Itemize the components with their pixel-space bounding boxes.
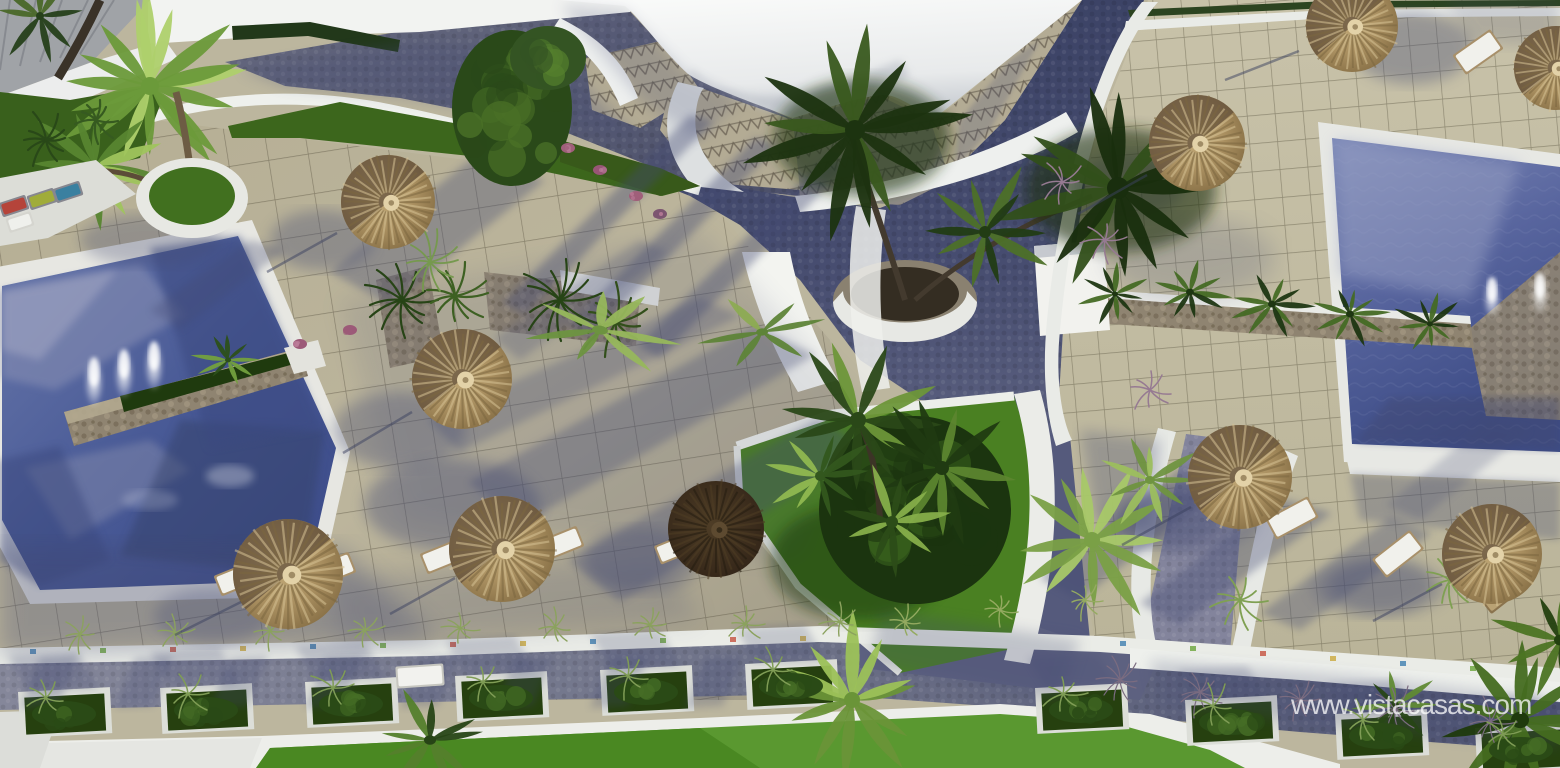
svg-text:www.vistacasas.com: www.vistacasas.com xyxy=(1290,689,1531,720)
